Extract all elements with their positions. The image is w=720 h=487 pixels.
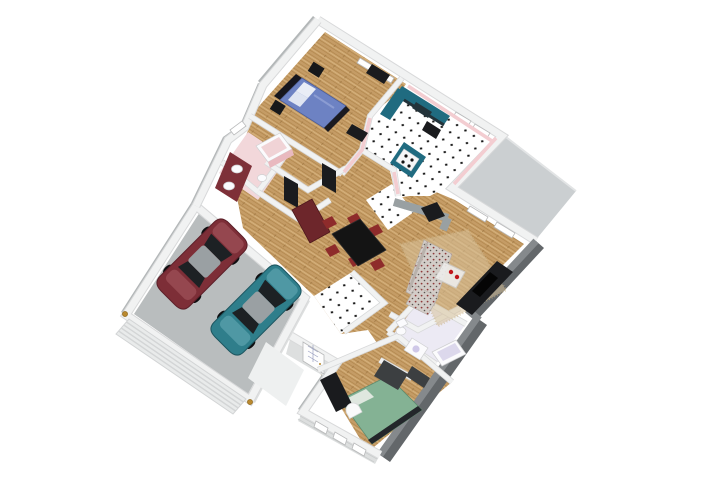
red-decor bbox=[455, 275, 459, 279]
burner-icon bbox=[407, 164, 410, 167]
red-decor bbox=[449, 270, 453, 274]
door-knob-icon bbox=[319, 363, 321, 365]
floorplan-rendering: 3D dollhouse-view floor plan rendering o… bbox=[0, 0, 720, 487]
sink bbox=[224, 182, 235, 190]
sink bbox=[412, 345, 419, 352]
burner-icon bbox=[410, 158, 413, 161]
toilet bbox=[258, 175, 267, 182]
carriage-lamp-icon bbox=[122, 311, 127, 316]
toilet bbox=[396, 327, 406, 335]
sink bbox=[232, 165, 243, 173]
carriage-lamp-icon bbox=[247, 399, 252, 404]
burner-icon bbox=[401, 160, 404, 163]
burner-icon bbox=[404, 154, 407, 157]
floorplan-svg: 3D dollhouse-view floor plan rendering o… bbox=[0, 0, 720, 487]
